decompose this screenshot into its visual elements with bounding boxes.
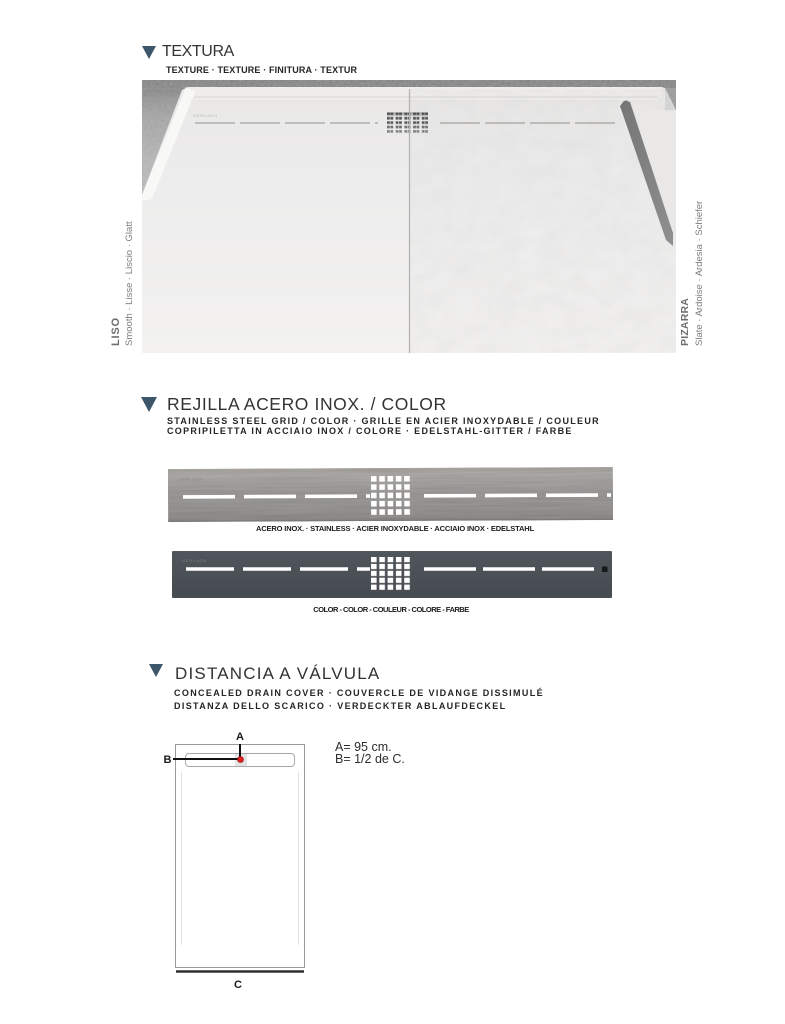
svg-text:B: B	[164, 754, 172, 766]
svg-text:GERLACH: GERLACH	[193, 113, 218, 118]
svg-text:A: A	[236, 731, 244, 743]
svg-text:GERLACH: GERLACH	[182, 558, 207, 563]
svg-text:GERLACH: GERLACH	[178, 477, 203, 482]
svg-text:C: C	[234, 979, 242, 991]
